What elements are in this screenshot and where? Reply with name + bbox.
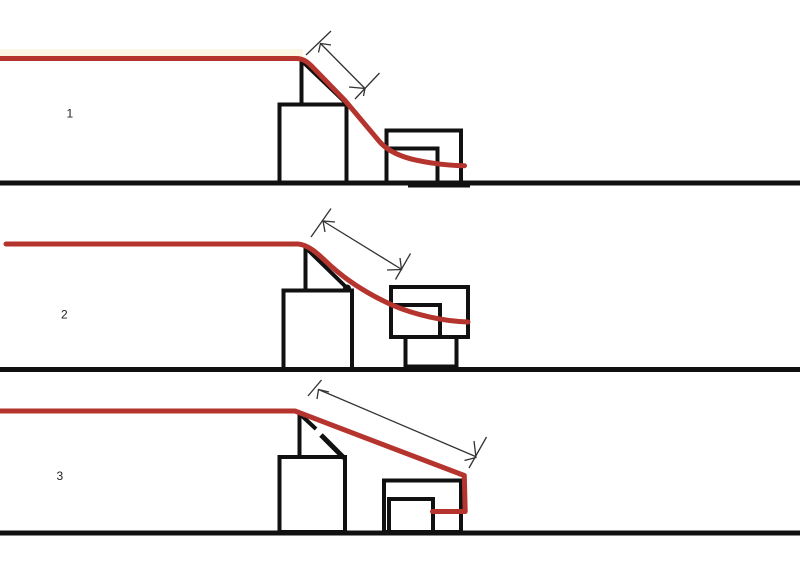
svg-text:2: 2 xyxy=(61,308,68,322)
svg-text:3: 3 xyxy=(57,469,64,483)
svg-text:1: 1 xyxy=(67,107,74,121)
